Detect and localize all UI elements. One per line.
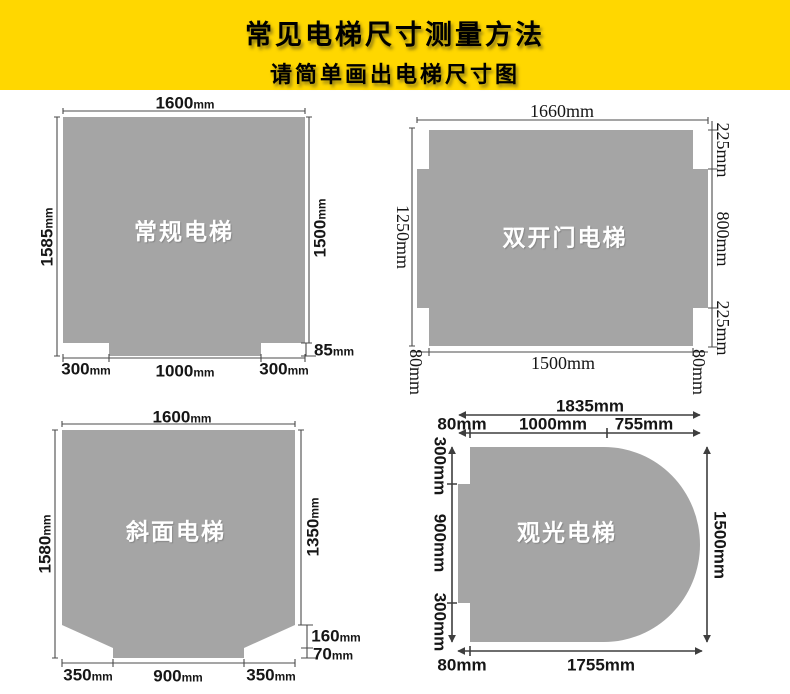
regular-elevator-label: 常规电梯 [134, 221, 234, 244]
double-door-dim-left: 1250mm [394, 205, 412, 269]
observation-dim-left-top: 300mm [432, 437, 449, 496]
slanted-elevator-label: 斜面电梯 [126, 521, 226, 544]
elevator-measurement-poster: 常见电梯尺寸测量方法 请简单画出电梯尺寸图 [0, 0, 790, 694]
double-door-dim-right-middle: 800mm [714, 211, 732, 266]
observation-dim-bottom: 1755mm [567, 657, 635, 674]
observation-dim-left-middle: 900mm [432, 514, 449, 573]
observation-dim-bottom-left: 80mm [437, 657, 486, 674]
regular-dim-top: 1600mm [156, 95, 215, 112]
double-door-dim-right-bottom: 225mm [714, 300, 732, 355]
observation-dim-right: 1500mm [712, 511, 729, 579]
double-door-dim-bottom-left: 80mm [407, 349, 425, 395]
diagrams-drawing [0, 0, 790, 694]
double-door-dim-bottom-center: 1500mm [531, 354, 595, 372]
slanted-dim-chamfer: 160mm [311, 628, 361, 645]
double-door-dim-bottom-right: 80mm [690, 349, 708, 395]
observation-dim-top-total: 1835mm [556, 398, 624, 415]
regular-dim-step: 85mm [314, 342, 354, 359]
double-door-dim-right-top: 225mm [714, 122, 732, 177]
double-door-elevator-label: 双开门电梯 [503, 227, 628, 250]
regular-dim-left: 1585mm [39, 208, 56, 267]
double-door-dim-top: 1660mm [530, 102, 594, 120]
regular-dim-bottom-left: 300mm [61, 361, 111, 378]
slanted-dim-top: 1600mm [153, 409, 212, 426]
slanted-dim-bottom-center: 900mm [153, 668, 203, 685]
regular-dim-right: 1500mm [312, 199, 329, 258]
slanted-dim-left: 1580mm [37, 515, 54, 574]
slanted-dim-bottom-left: 350mm [63, 667, 113, 684]
slanted-dim-right: 1350mm [305, 498, 322, 557]
regular-dim-bottom-right: 300mm [259, 361, 309, 378]
observation-dim-top-right: 755mm [615, 416, 674, 433]
regular-dim-bottom-center: 1000mm [156, 363, 215, 380]
observation-elevator-label: 观光电梯 [517, 522, 617, 545]
observation-dim-top-center: 1000mm [519, 416, 587, 433]
observation-dim-left-bottom: 300mm [432, 593, 449, 652]
observation-dim-top-left: 80mm [437, 416, 486, 433]
slanted-dim-bottom-right: 350mm [246, 667, 296, 684]
slanted-dim-step: 70mm [313, 646, 353, 663]
